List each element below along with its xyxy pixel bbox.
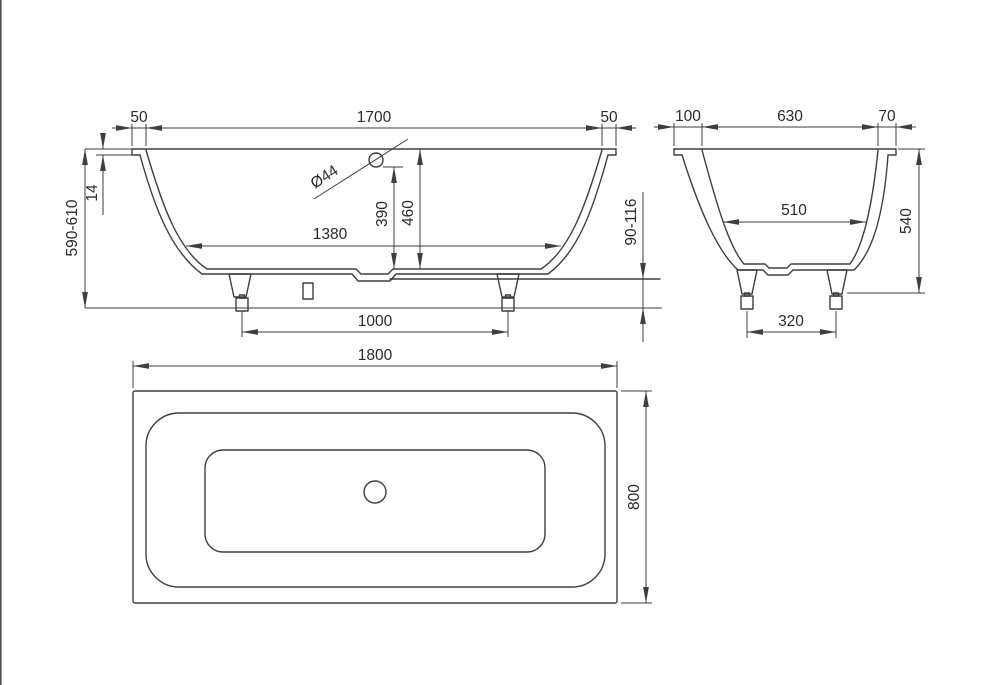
- dim-label-end-rim-overhang-left: 100: [675, 108, 701, 125]
- plan-basin-bottom-rect: [205, 450, 545, 552]
- dim-label-rim-thickness: 14: [84, 184, 101, 202]
- dim-label-feet-height-range: 90-116: [623, 198, 640, 245]
- plan-tub-outline: [133, 391, 617, 603]
- front-left-foot-pad: [236, 298, 248, 311]
- end-rim-right-edge: [888, 149, 896, 155]
- dim-label-bottom-length: 1380: [313, 226, 348, 243]
- dim-label-front-opening-length: 1700: [357, 109, 392, 126]
- end-tub-outline: [674, 149, 896, 309]
- bathtub-technical-drawing: 50 1700 50 14 590-610 Ø44 390 460: [0, 0, 1000, 685]
- end-elevation-view: 100 630 70 510 540 320: [654, 108, 925, 338]
- dim-label-overflow-diameter: Ø44: [308, 162, 342, 192]
- overall-length-dim: [133, 361, 617, 388]
- front-dimensions: 50 1700 50 14 590-610 Ø44 390 460: [64, 109, 643, 342]
- end-left-foot-bracket: [737, 270, 757, 294]
- dim-label-end-rim-overhang-right: 70: [878, 108, 896, 125]
- end-top-extension-lines: [674, 123, 896, 146]
- end-rim-left-edge: [674, 149, 682, 155]
- dim-label-body-height: 540: [898, 208, 915, 234]
- end-dimensions: 100 630 70 510 540 320: [654, 108, 925, 338]
- front-drain-outlet: [303, 283, 313, 299]
- end-right-foot-pad: [830, 296, 842, 309]
- front-right-foot-bracket: [497, 274, 519, 297]
- front-rim-left-edge: [132, 149, 140, 155]
- dim-label-end-opening-width: 630: [777, 108, 803, 125]
- dim-label-overall-width: 800: [626, 484, 643, 510]
- dim-label-front-feet-spacing: 1000: [358, 313, 393, 330]
- plan-inner-rim-rect: [146, 413, 605, 587]
- front-right-foot-pad: [502, 298, 514, 311]
- front-rim-right-edge: [608, 149, 616, 155]
- dim-label-bottom-width: 510: [781, 202, 807, 219]
- dim-label-overall-height: 590-610: [64, 199, 81, 256]
- drain-hole: [364, 481, 386, 503]
- plan-view: 1800 800: [133, 347, 652, 603]
- screenshot-left-border: [0, 0, 2, 685]
- dim-label-overall-length: 1800: [358, 347, 393, 364]
- front-left-foot-bracket: [229, 274, 251, 297]
- end-left-foot-pad: [741, 296, 753, 309]
- technical-drawing-page: 50 1700 50 14 590-610 Ø44 390 460: [0, 0, 1000, 685]
- dim-label-front-rim-overhang-left: 50: [130, 109, 148, 126]
- end-right-foot-bracket: [827, 270, 847, 294]
- plan-dimensions: 1800 800: [133, 347, 652, 603]
- front-elevation-view: 50 1700 50 14 590-610 Ø44 390 460: [64, 109, 662, 342]
- dim-label-end-feet-spacing: 320: [778, 313, 804, 330]
- dim-label-overflow-height: 390: [374, 201, 391, 227]
- dim-label-inner-depth: 460: [400, 200, 417, 226]
- front-top-extension-lines: [132, 124, 616, 146]
- dim-label-front-rim-overhang-right: 50: [600, 109, 618, 126]
